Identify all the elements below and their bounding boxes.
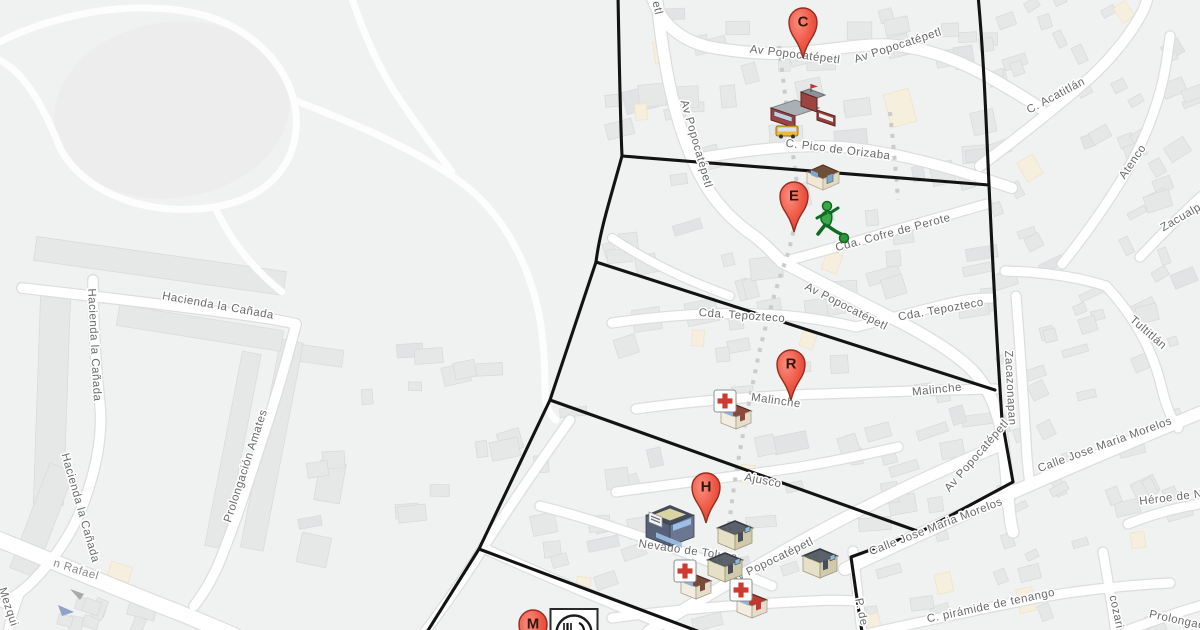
pin-letter: E: [789, 187, 799, 204]
pin-letter: C: [798, 13, 809, 30]
map-svg[interactable]: etlAv PopocatépetlAv PopocatépetlC. Acat…: [0, 0, 1200, 630]
pin-letter: M: [527, 615, 540, 630]
pin-letter: H: [701, 478, 712, 495]
pin-letter: R: [786, 355, 797, 372]
restaurant-icon[interactable]: [551, 609, 598, 630]
map-canvas[interactable]: etlAv PopocatépetlAv PopocatépetlC. Acat…: [0, 0, 1200, 630]
